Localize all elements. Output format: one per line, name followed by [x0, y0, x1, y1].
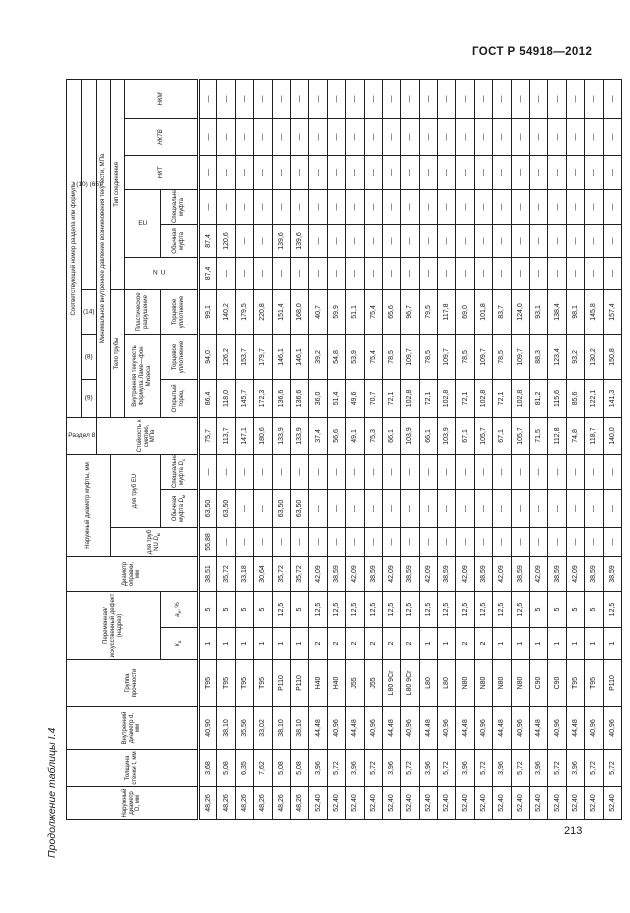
cell-nktv: —: [401, 118, 419, 155]
cell-mandrel: 35,72: [217, 556, 235, 591]
cell-seal8: 153,7: [235, 334, 253, 379]
cell-open_end: 72,1: [456, 379, 474, 417]
cell-nkt: —: [401, 155, 419, 189]
cell-k: 1: [493, 628, 511, 660]
cell-eu_ds: —: [474, 454, 492, 489]
cell-nu_dm: —: [235, 527, 253, 556]
cell-nktv: —: [566, 118, 584, 155]
cell-open_end: 81,2: [530, 379, 548, 417]
cell-nktv: —: [456, 118, 474, 155]
cell-k: 1: [566, 628, 584, 660]
cell-nkm: —: [603, 79, 621, 118]
cell-conn_eu_spec: —: [290, 189, 308, 224]
cell-nkt: —: [566, 155, 584, 189]
cell-d_out: 52,40: [493, 787, 511, 820]
cell-a: 12,5: [438, 591, 456, 627]
cell-d_out: 52,40: [603, 787, 621, 820]
cell-nktv: —: [382, 118, 400, 155]
cell-conn_eu_reg: —: [254, 224, 272, 257]
table-row: 52,405,7240,96N80212,538,59———105,7102,8…: [474, 79, 492, 819]
cell-eu_ds: —: [603, 454, 621, 489]
cell-nktv: —: [254, 118, 272, 155]
cell-eu_dm: —: [493, 489, 511, 527]
cell-nktv: —: [530, 118, 548, 155]
cell-grade: N80: [511, 660, 529, 707]
cell-conn_eu_spec: —: [382, 189, 400, 224]
cell-conn_eu_reg: —: [474, 224, 492, 257]
page-number: 213: [564, 825, 582, 837]
cell-conn_eu_reg: 139,6: [272, 224, 290, 257]
cell-eu_ds: —: [272, 454, 290, 489]
cell-nkt: —: [603, 155, 621, 189]
cell-conn_eu_reg: 120,6: [217, 224, 235, 257]
cell-eu_dm: —: [419, 489, 437, 527]
table-row: 52,405,7240,96L80112,538,59———103,9102,8…: [438, 79, 456, 819]
cell-d_in: 44,48: [309, 707, 327, 750]
cell-grade: T95: [199, 660, 217, 707]
cell-seal14: 179,5: [235, 289, 253, 334]
cell-d_in: 40,96: [401, 707, 419, 750]
cell-a: 5: [585, 591, 603, 627]
document-page: ГОСТ Р 54918—2012 Продолжение таблицы I.…: [0, 0, 630, 913]
header-notch-group: Переменная/ искусственный дефект (надрез…: [67, 591, 161, 659]
cell-open_end: 86,4: [199, 379, 217, 417]
cell-nktv: —: [585, 118, 603, 155]
cell-conn_eu_spec: —: [548, 189, 566, 224]
cell-conn_eu_reg: —: [364, 224, 382, 257]
cell-conn_nu: —: [548, 257, 566, 289]
cell-nu_dm: —: [309, 527, 327, 556]
cell-open_end: 141,3: [603, 379, 621, 417]
table-row: 52,405,7240,96J55212,538,59———75,370,775…: [364, 79, 382, 819]
cell-t: 5,72: [401, 750, 419, 787]
cell-open_end: 172,3: [254, 379, 272, 417]
cell-seal14: 40,7: [309, 289, 327, 334]
cell-k: 2: [382, 628, 400, 660]
cell-seal8: 146,1: [290, 334, 308, 379]
cell-d_in: 38,10: [272, 707, 290, 750]
cell-a: 12,5: [382, 591, 400, 627]
cell-t: 5,72: [438, 750, 456, 787]
cell-d_out: 52,40: [382, 787, 400, 820]
cell-eu_ds: —: [566, 454, 584, 489]
cell-nu_dm: —: [364, 527, 382, 556]
cell-conn_nu: —: [419, 257, 437, 289]
cell-nkm: —: [438, 79, 456, 118]
cell-nu_dm: —: [254, 527, 272, 556]
header-inner-diameter: Внутренний диаметр d, мм: [67, 707, 199, 750]
cell-t: 7,62: [254, 750, 272, 787]
cell-nkm: —: [199, 79, 217, 118]
cell-conn_nu: —: [382, 257, 400, 289]
cell-d_in: 40,96: [548, 707, 566, 750]
cell-a: 12,5: [327, 591, 345, 627]
cell-nu_dm: —: [585, 527, 603, 556]
cell-eu_ds: —: [456, 454, 474, 489]
header-formula-8: (8): [82, 334, 97, 379]
cell-a: 5: [254, 591, 272, 627]
cell-grade: L80 9Cr: [401, 660, 419, 707]
cell-conn_eu_reg: —: [382, 224, 400, 257]
cell-seal14: 59,9: [327, 289, 345, 334]
cell-collapse: 56,6: [327, 417, 345, 454]
cell-nu_dm: —: [272, 527, 290, 556]
cell-nkm: —: [364, 79, 382, 118]
cell-eu_dm: 63,50: [290, 489, 308, 527]
cell-seal8: 123,4: [548, 334, 566, 379]
cell-a: 5: [548, 591, 566, 627]
cell-seal14: 220,8: [254, 289, 272, 334]
header-collapse-resistance: Стойкость к смятию, МПа: [97, 417, 199, 454]
cell-conn_eu_spec: —: [474, 189, 492, 224]
header-outer-diameter: Наружный диаметр D, мм: [67, 787, 199, 820]
cell-grade: C90: [530, 660, 548, 707]
cell-seal8: 179,7: [254, 334, 272, 379]
cell-k: 1: [603, 628, 621, 660]
cell-t: 5,72: [474, 750, 492, 787]
cell-conn_eu_reg: —: [548, 224, 566, 257]
cell-k: 2: [456, 628, 474, 660]
cell-nkm: —: [346, 79, 364, 118]
cell-nktv: —: [438, 118, 456, 155]
cell-seal8: 126,2: [217, 334, 235, 379]
cell-collapse: 105,7: [474, 417, 492, 454]
table-row: 52,403,9644,48C901542,09———71,581,288,39…: [530, 79, 548, 819]
cell-nktv: —: [511, 118, 529, 155]
header-end-seal-14: Торцевое уплотнение: [161, 289, 199, 334]
cell-collapse: 49,1: [346, 417, 364, 454]
cell-eu_ds: —: [438, 454, 456, 489]
cell-seal8: 109,7: [511, 334, 529, 379]
cell-d_in: 44,48: [566, 707, 584, 750]
cell-open_end: 145,7: [235, 379, 253, 417]
cell-d_in: 35,56: [235, 707, 253, 750]
cell-grade: L80: [438, 660, 456, 707]
header-open-end: Открытый торец: [161, 379, 199, 417]
cell-d_out: 48,26: [235, 787, 253, 820]
cell-d_in: 44,48: [456, 707, 474, 750]
cell-nu_dm: —: [327, 527, 345, 556]
cell-eu_dm: —: [474, 489, 492, 527]
table-body: 48,263,6840,90T951538,5155,8863,50—75,78…: [199, 79, 622, 819]
cell-mandrel: 42,09: [419, 556, 437, 591]
header-grade: Группа прочности: [67, 660, 199, 707]
cell-conn_eu_reg: —: [419, 224, 437, 257]
cell-nktv: —: [346, 118, 364, 155]
cell-t: 5,08: [290, 750, 308, 787]
header-formula-10-65: (10) (65): [82, 79, 97, 289]
cell-conn_eu_reg: —: [438, 224, 456, 257]
cell-nkt: —: [419, 155, 437, 189]
cell-conn_eu_spec: —: [530, 189, 548, 224]
cell-nkt: —: [493, 155, 511, 189]
cell-eu_ds: —: [530, 454, 548, 489]
cell-conn_nu: —: [511, 257, 529, 289]
cell-a: 5: [217, 591, 235, 627]
cell-nkm: —: [401, 79, 419, 118]
table-row: 52,403,9644,48N80112,542,09———67,172,178…: [493, 79, 511, 819]
cell-d_out: 52,40: [346, 787, 364, 820]
cell-eu_dm: —: [438, 489, 456, 527]
cell-conn_nu: —: [272, 257, 290, 289]
cell-mandrel: 38,59: [548, 556, 566, 591]
cell-nkm: —: [272, 79, 290, 118]
cell-conn_eu_reg: —: [346, 224, 364, 257]
cell-eu_dm: —: [364, 489, 382, 527]
cell-seal14: 65,6: [382, 289, 400, 334]
cell-open_end: 85,6: [566, 379, 584, 417]
cell-nktv: —: [309, 118, 327, 155]
cell-k: 1: [272, 628, 290, 660]
table-row: 48,265,0838,10P110112,535,72—63,50—133,9…: [272, 79, 290, 819]
table-row: 52,405,7240,96C901538,59———112,8115,6123…: [548, 79, 566, 819]
cell-collapse: 118,7: [585, 417, 603, 454]
cell-seal14: 117,8: [438, 289, 456, 334]
cell-seal8: 146,1: [272, 334, 290, 379]
cell-mandrel: 38,59: [327, 556, 345, 591]
cell-eu_dm: —: [382, 489, 400, 527]
cell-open_end: 72,1: [419, 379, 437, 417]
cell-a: 12,5: [272, 591, 290, 627]
table-row: 48,266,3535,56T951533,18———147,1145,7153…: [235, 79, 253, 819]
cell-d_in: 40,96: [474, 707, 492, 750]
cell-eu_dm: —: [548, 489, 566, 527]
cell-nktv: —: [548, 118, 566, 155]
cell-seal14: 157,4: [603, 289, 621, 334]
cell-nkt: —: [327, 155, 345, 189]
cell-nkm: —: [309, 79, 327, 118]
cell-grade: H40: [309, 660, 327, 707]
cell-seal8: 39,2: [309, 334, 327, 379]
cell-t: 6,35: [235, 750, 253, 787]
cell-d_out: 52,40: [401, 787, 419, 820]
cell-k: 1: [438, 628, 456, 660]
cell-nu_dm: —: [548, 527, 566, 556]
cell-collapse: 75,3: [364, 417, 382, 454]
cell-grade: T95: [585, 660, 603, 707]
cell-nkm: —: [585, 79, 603, 118]
cell-nkt: —: [438, 155, 456, 189]
cell-seal14: 51,1: [346, 289, 364, 334]
cell-d_in: 44,48: [530, 707, 548, 750]
cell-a: 12,5: [419, 591, 437, 627]
cell-t: 3,68: [199, 750, 217, 787]
cell-eu_dm: —: [585, 489, 603, 527]
header-coupling-od-group: Наружный диаметр муфты, мм: [67, 454, 111, 556]
cell-a: 5: [199, 591, 217, 627]
cell-conn_nu: —: [346, 257, 364, 289]
table-row: 48,267,6233,02T951530,64———180,6172,3179…: [254, 79, 272, 819]
cell-conn_eu_spec: —: [217, 189, 235, 224]
cell-nkt: —: [364, 155, 382, 189]
header-min-internal-yield: Минимальное внутреннее давление возникно…: [97, 79, 111, 417]
cell-conn_eu_spec: —: [401, 189, 419, 224]
cell-grade: N80: [493, 660, 511, 707]
cell-conn_eu_spec: —: [327, 189, 345, 224]
cell-grade: P110: [272, 660, 290, 707]
cell-k: 1: [419, 628, 437, 660]
cell-grade: J55: [364, 660, 382, 707]
cell-eu_dm: 63,50: [272, 489, 290, 527]
cell-conn_eu_spec: —: [309, 189, 327, 224]
cell-mandrel: 35,72: [290, 556, 308, 591]
cell-mandrel: 38,59: [438, 556, 456, 591]
header-eu-special-coupling: Специальная муфта: [161, 189, 199, 224]
cell-conn_nu: 87,4: [199, 257, 217, 289]
table-row: 48,263,6840,90T951538,5155,8863,50—75,78…: [199, 79, 217, 819]
cell-d_out: 52,40: [511, 787, 529, 820]
cell-nktv: —: [474, 118, 492, 155]
cell-k: 2: [474, 628, 492, 660]
cell-mandrel: 38,59: [603, 556, 621, 591]
cell-k: 1: [254, 628, 272, 660]
table-row: 52,403,9644,48T951542,09———74,885,693,29…: [566, 79, 584, 819]
cell-open_end: 115,6: [548, 379, 566, 417]
cell-eu_dm: 63,50: [199, 489, 217, 527]
cell-seal14: 93,1: [530, 289, 548, 334]
cell-d_in: 33,02: [254, 707, 272, 750]
rotated-table-area: Наружный диаметр D, мм Толщина стенки t,…: [66, 80, 622, 820]
cell-mandrel: 38,59: [511, 556, 529, 591]
cell-d_out: 52,40: [548, 787, 566, 820]
cell-eu_ds: —: [235, 454, 253, 489]
cell-eu_dm: —: [511, 489, 529, 527]
main-table: Наружный диаметр D, мм Толщина стенки t,…: [66, 79, 622, 820]
cell-conn_nu: —: [530, 257, 548, 289]
cell-d_out: 52,40: [419, 787, 437, 820]
cell-a: 12,5: [309, 591, 327, 627]
cell-eu_ds: —: [199, 454, 217, 489]
cell-d_out: 48,26: [254, 787, 272, 820]
cell-d_in: 38,10: [290, 707, 308, 750]
cell-nkt: —: [290, 155, 308, 189]
cell-nktv: —: [272, 118, 290, 155]
cell-k: 1: [199, 628, 217, 660]
cell-t: 3,96: [382, 750, 400, 787]
cell-a: 5: [530, 591, 548, 627]
cell-open_end: 136,6: [290, 379, 308, 417]
cell-eu_ds: —: [346, 454, 364, 489]
cell-nkm: —: [548, 79, 566, 118]
cell-conn_eu_spec: —: [603, 189, 621, 224]
cell-grade: C90: [548, 660, 566, 707]
cell-conn_eu_spec: —: [419, 189, 437, 224]
header-formula-14: (14): [82, 289, 97, 334]
cell-conn_eu_reg: 139,6: [290, 224, 308, 257]
cell-d_in: 40,96: [438, 707, 456, 750]
cell-seal14: 69,0: [456, 289, 474, 334]
cell-conn_nu: —: [309, 257, 327, 289]
cell-nktv: —: [217, 118, 235, 155]
cell-collapse: 180,6: [254, 417, 272, 454]
cell-open_end: 102,8: [474, 379, 492, 417]
cell-open_end: 72,1: [382, 379, 400, 417]
cell-nu_dm: —: [456, 527, 474, 556]
table-row: 52,405,7240,96H40212,538,59———56,651,454…: [327, 79, 345, 819]
cell-nkt: —: [530, 155, 548, 189]
cell-conn_eu_reg: —: [327, 224, 345, 257]
cell-a: 5: [235, 591, 253, 627]
cell-k: 2: [309, 628, 327, 660]
cell-nu_dm: —: [474, 527, 492, 556]
cell-nu_dm: —: [511, 527, 529, 556]
cell-t: 3,96: [493, 750, 511, 787]
cell-nkm: —: [327, 79, 345, 118]
cell-mandrel: 38,59: [585, 556, 603, 591]
cell-conn_nu: —: [566, 257, 584, 289]
cell-seal8: 75,4: [364, 334, 382, 379]
cell-seal8: 78,5: [382, 334, 400, 379]
cell-d_out: 52,40: [456, 787, 474, 820]
cell-collapse: 67,1: [456, 417, 474, 454]
cell-eu_ds: —: [382, 454, 400, 489]
cell-conn_eu_spec: —: [254, 189, 272, 224]
cell-seal8: 53,9: [346, 334, 364, 379]
cell-conn_nu: —: [401, 257, 419, 289]
cell-conn_eu_reg: —: [585, 224, 603, 257]
cell-open_end: 102,8: [438, 379, 456, 417]
cell-collapse: 71,5: [530, 417, 548, 454]
cell-d_out: 52,40: [309, 787, 327, 820]
cell-seal14: 145,8: [585, 289, 603, 334]
cell-a: 12,5: [364, 591, 382, 627]
cell-nkt: —: [585, 155, 603, 189]
cell-mandrel: 42,09: [382, 556, 400, 591]
cell-nkm: —: [566, 79, 584, 118]
cell-seal8: 78,5: [493, 334, 511, 379]
cell-conn_nu: —: [474, 257, 492, 289]
header-conn-eu: EU: [125, 189, 161, 257]
cell-nkt: —: [199, 155, 217, 189]
cell-seal8: 94,0: [199, 334, 217, 379]
header-conn-nkt: НКТ: [125, 155, 199, 189]
table-row: 52,405,7240,96N80112,538,59———105,7102,8…: [511, 79, 529, 819]
cell-d_out: 52,40: [364, 787, 382, 820]
cell-k: 1: [585, 628, 603, 660]
cell-d_in: 40,96: [327, 707, 345, 750]
cell-mandrel: 33,18: [235, 556, 253, 591]
cell-grade: J55: [346, 660, 364, 707]
cell-k: 2: [346, 628, 364, 660]
cell-collapse: 66,1: [382, 417, 400, 454]
cell-nkt: —: [272, 155, 290, 189]
cell-collapse: 74,8: [566, 417, 584, 454]
cell-seal14: 140,2: [217, 289, 235, 334]
table-row: 52,405,7240,96T951538,59———118,7122,1130…: [585, 79, 603, 819]
cell-conn_nu: —: [364, 257, 382, 289]
header-plastic-failure: Пластическое разрушение: [125, 289, 161, 334]
cell-nkm: —: [290, 79, 308, 118]
cell-nkm: —: [530, 79, 548, 118]
cell-seal14: 96,7: [401, 289, 419, 334]
cell-conn_eu_reg: —: [603, 224, 621, 257]
cell-t: 3,96: [530, 750, 548, 787]
cell-nkm: —: [235, 79, 253, 118]
cell-k: 1: [290, 628, 308, 660]
cell-collapse: 103,9: [438, 417, 456, 454]
cell-open_end: 102,8: [511, 379, 529, 417]
cell-k: 2: [401, 628, 419, 660]
cell-mandrel: 42,09: [346, 556, 364, 591]
cell-collapse: 66,1: [419, 417, 437, 454]
header-wall-thickness: Толщина стенки t, мм: [67, 750, 199, 787]
cell-mandrel: 30,64: [254, 556, 272, 591]
cell-nu_dm: —: [290, 527, 308, 556]
cell-nktv: —: [419, 118, 437, 155]
cell-t: 5,72: [548, 750, 566, 787]
header-section8: Раздел 8: [67, 417, 97, 454]
cell-seal14: 101,8: [474, 289, 492, 334]
